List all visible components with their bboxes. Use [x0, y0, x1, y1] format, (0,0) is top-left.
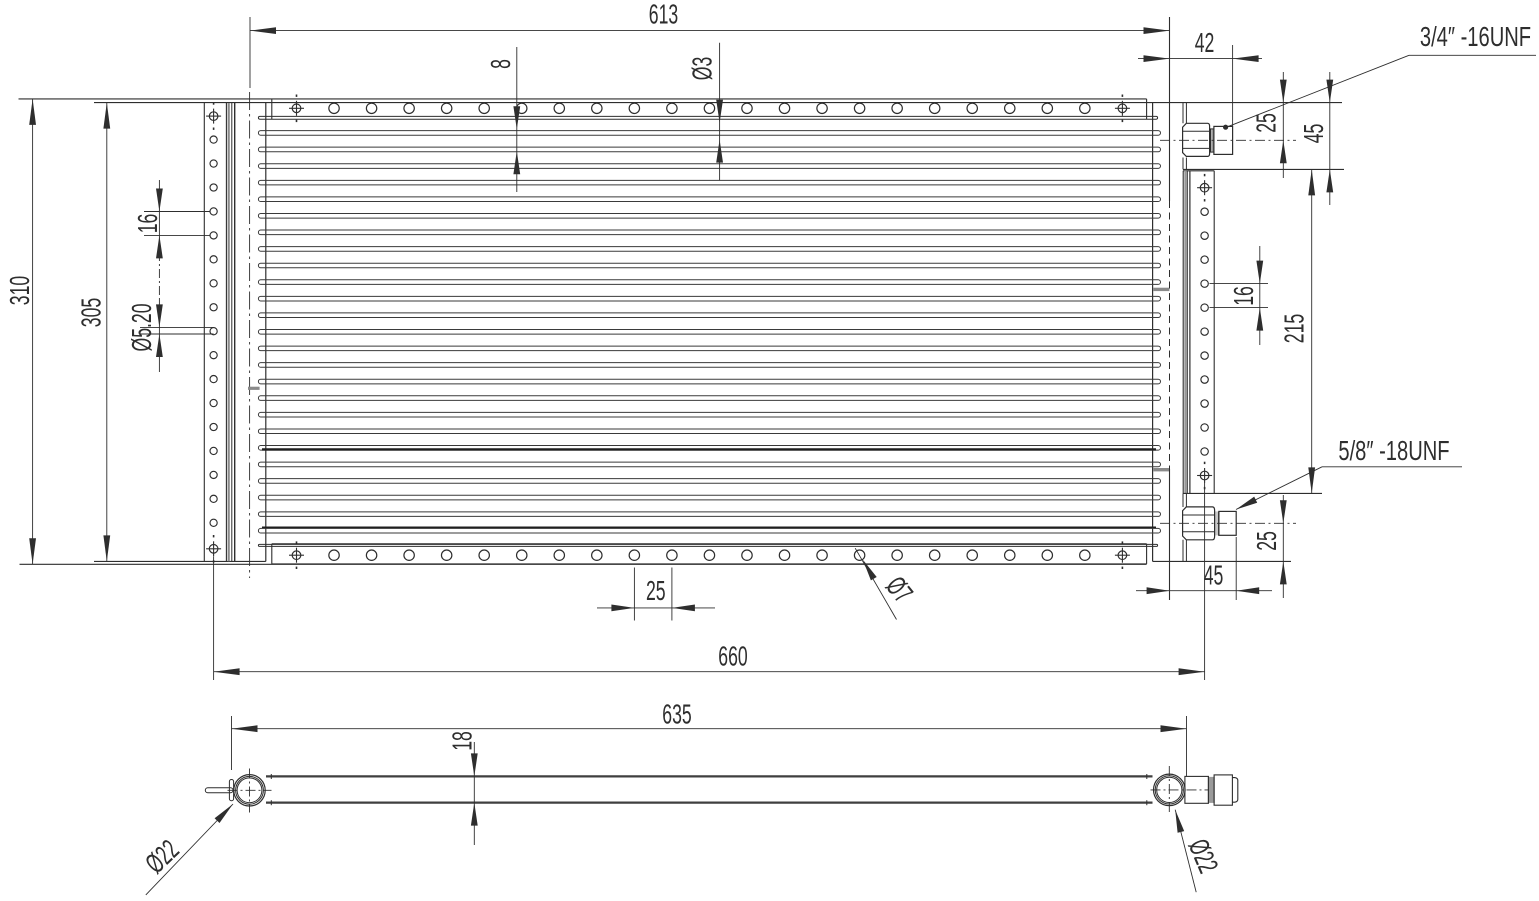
svg-text:18: 18: [446, 731, 477, 751]
svg-text:5/8″ -18UNF: 5/8″ -18UNF: [1338, 436, 1449, 467]
svg-text:45: 45: [1298, 124, 1329, 144]
svg-text:635: 635: [662, 698, 691, 729]
svg-text:Ø5.20: Ø5.20: [126, 303, 157, 351]
svg-text:8: 8: [485, 59, 516, 69]
svg-text:16: 16: [132, 214, 163, 234]
svg-text:660: 660: [718, 640, 747, 671]
svg-text:215: 215: [1278, 314, 1309, 343]
svg-text:310: 310: [4, 276, 35, 305]
svg-text:45: 45: [1204, 559, 1224, 590]
svg-text:42: 42: [1195, 27, 1215, 58]
svg-text:25: 25: [1251, 531, 1282, 551]
svg-text:Ø3: Ø3: [686, 57, 717, 81]
svg-text:25: 25: [646, 575, 666, 606]
svg-text:305: 305: [75, 298, 106, 327]
svg-text:3/4″ -16UNF: 3/4″ -16UNF: [1420, 22, 1531, 53]
svg-text:613: 613: [649, 0, 678, 30]
svg-text:16: 16: [1228, 286, 1259, 306]
